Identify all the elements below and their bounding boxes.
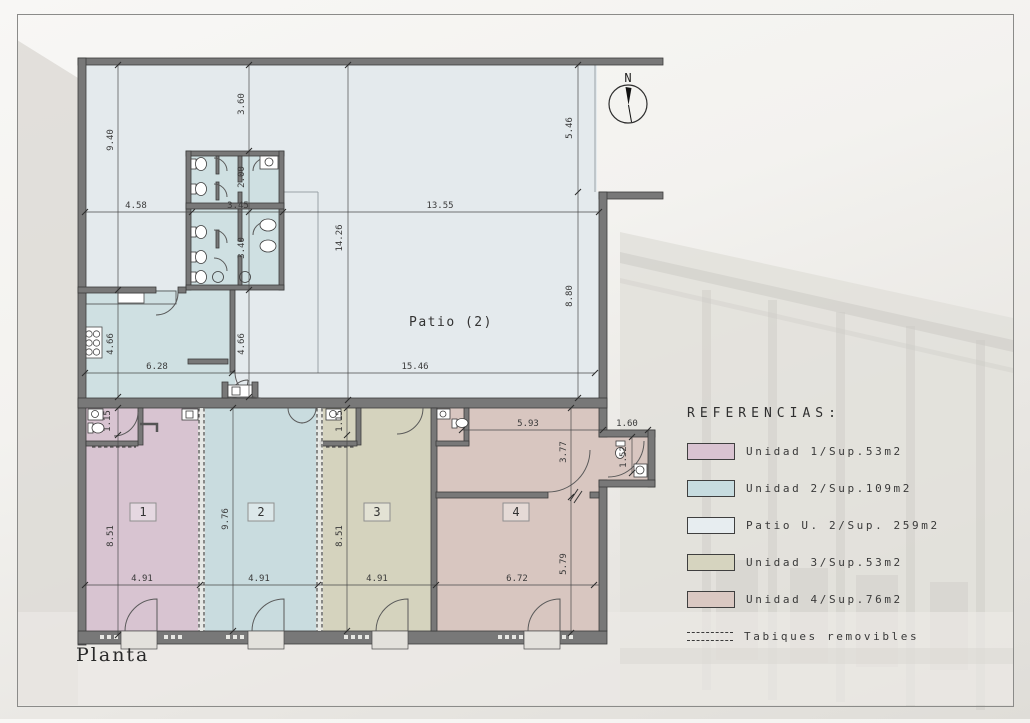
dim-6-28: 6.28 <box>146 362 168 372</box>
dim-15-46: 15.46 <box>401 362 428 372</box>
dashed-line-symbol <box>687 632 733 641</box>
dim-4-58: 4.58 <box>125 201 147 211</box>
annex-wall-right <box>648 430 655 487</box>
dim-3-40: 3.40 <box>237 237 247 259</box>
wall-patio-separation <box>78 398 607 408</box>
unit3-closet-wall <box>320 441 357 446</box>
dim-6-72: 6.72 <box>506 574 528 584</box>
annex-wall-bottom <box>599 480 655 487</box>
unit1-color-swatch <box>687 443 735 460</box>
unit4-bath-wall <box>436 441 469 446</box>
legend: REFERENCIAS: Unidad 1/Sup.53m2 Unidad 2/… <box>687 406 977 645</box>
dim-1-60: 1.60 <box>616 419 638 429</box>
dim-3-60: 3.60 <box>237 93 247 115</box>
dim-1-15-u1: 1.15 <box>103 410 113 432</box>
door-threshold-unit4 <box>524 631 560 649</box>
north-arrow: N <box>609 71 647 123</box>
dim-4-91-u1: 4.91 <box>131 574 153 584</box>
bath-block-wall <box>186 151 191 290</box>
dim-14-26: 14.26 <box>335 224 345 251</box>
unit1-bath-wall <box>138 408 143 445</box>
compass-n-label: N <box>624 71 631 85</box>
dim-4-91-u2: 4.91 <box>248 574 270 584</box>
wall-step-top <box>599 192 663 199</box>
dim-1-52: 1.52 <box>619 446 629 468</box>
bath-block-wall <box>279 151 284 290</box>
legend-item-unit2: Unidad 2/Sup.109m2 <box>687 480 977 497</box>
dim-5-93: 5.93 <box>517 419 539 429</box>
dim-8-51-u3: 8.51 <box>335 525 345 547</box>
legend-label: Unidad 1/Sup.53m2 <box>746 445 903 458</box>
legend-label: Tabiques removibles <box>744 630 919 643</box>
patio-fill-upper <box>86 65 597 192</box>
kitchen-shelf <box>188 359 228 364</box>
unit4-internal-wall <box>590 492 599 498</box>
door-threshold-unit3 <box>372 631 408 649</box>
legend-label: Unidad 3/Sup.53m2 <box>746 556 903 569</box>
patio-color-swatch <box>687 517 735 534</box>
legend-item-patio: Patio U. 2/Sup. 259m2 <box>687 517 977 534</box>
legend-label: Unidad 2/Sup.109m2 <box>746 482 912 495</box>
bath-block-wall <box>186 285 284 290</box>
dim-5-46: 5.46 <box>565 117 575 139</box>
kitchen-wall <box>78 287 156 293</box>
unit1-bath-wall <box>86 441 138 446</box>
corridor-wall <box>230 290 235 372</box>
legend-title: REFERENCIAS: <box>687 406 977 423</box>
compass-needle <box>626 87 632 105</box>
wall-left <box>78 58 86 645</box>
legend-item-unit4: Unidad 4/Sup.76m2 <box>687 591 977 608</box>
dim-8-51-u1: 8.51 <box>106 525 116 547</box>
legend-label: Unidad 4/Sup.76m2 <box>746 593 903 606</box>
kitchen-wall <box>178 287 186 293</box>
legend-label: Patio U. 2/Sup. 259m2 <box>746 519 940 532</box>
sheet: 4.58 3.45 13.55 6.28 15.46 4.91 4.91 4.9… <box>0 0 1030 719</box>
patio-label: Patio (2) <box>409 315 493 330</box>
unit3-closet-wall <box>356 408 361 445</box>
door-threshold-unit2 <box>248 631 284 649</box>
dim-4-91-u3: 4.91 <box>366 574 388 584</box>
dim-8-80: 8.80 <box>565 285 575 307</box>
floor-fills <box>86 65 648 631</box>
dim-9-76: 9.76 <box>221 508 231 530</box>
page-title: Planta <box>76 644 149 666</box>
dim-2-00: 2.00 <box>237 166 247 188</box>
dim-13-55: 13.55 <box>426 201 453 211</box>
legend-item-tabiques: Tabiques removibles <box>687 628 977 645</box>
wall-top <box>78 58 663 65</box>
dim-9-40: 9.40 <box>106 129 116 151</box>
unit2-color-swatch <box>687 480 735 497</box>
unit4-internal-wall <box>436 492 548 498</box>
room-number-1: 1 <box>139 505 146 519</box>
room-number-2: 2 <box>257 505 264 519</box>
dim-3-45: 3.45 <box>227 201 249 211</box>
dim-5-79: 5.79 <box>559 553 569 575</box>
unit4-color-swatch <box>687 591 735 608</box>
dim-4-66-left: 4.66 <box>106 333 116 355</box>
dim-3-77: 3.77 <box>559 441 569 463</box>
wall-right-lower <box>599 480 607 631</box>
room-number-3: 3 <box>373 505 380 519</box>
room-number-4: 4 <box>512 505 519 519</box>
legend-item-unit3: Unidad 3/Sup.53m2 <box>687 554 977 571</box>
legend-item-unit1: Unidad 1/Sup.53m2 <box>687 443 977 460</box>
bath-block-wall <box>186 151 284 156</box>
dim-1-15-u3: 1.15 <box>335 410 345 432</box>
unit3-color-swatch <box>687 554 735 571</box>
dim-4-66-right: 4.66 <box>237 333 247 355</box>
